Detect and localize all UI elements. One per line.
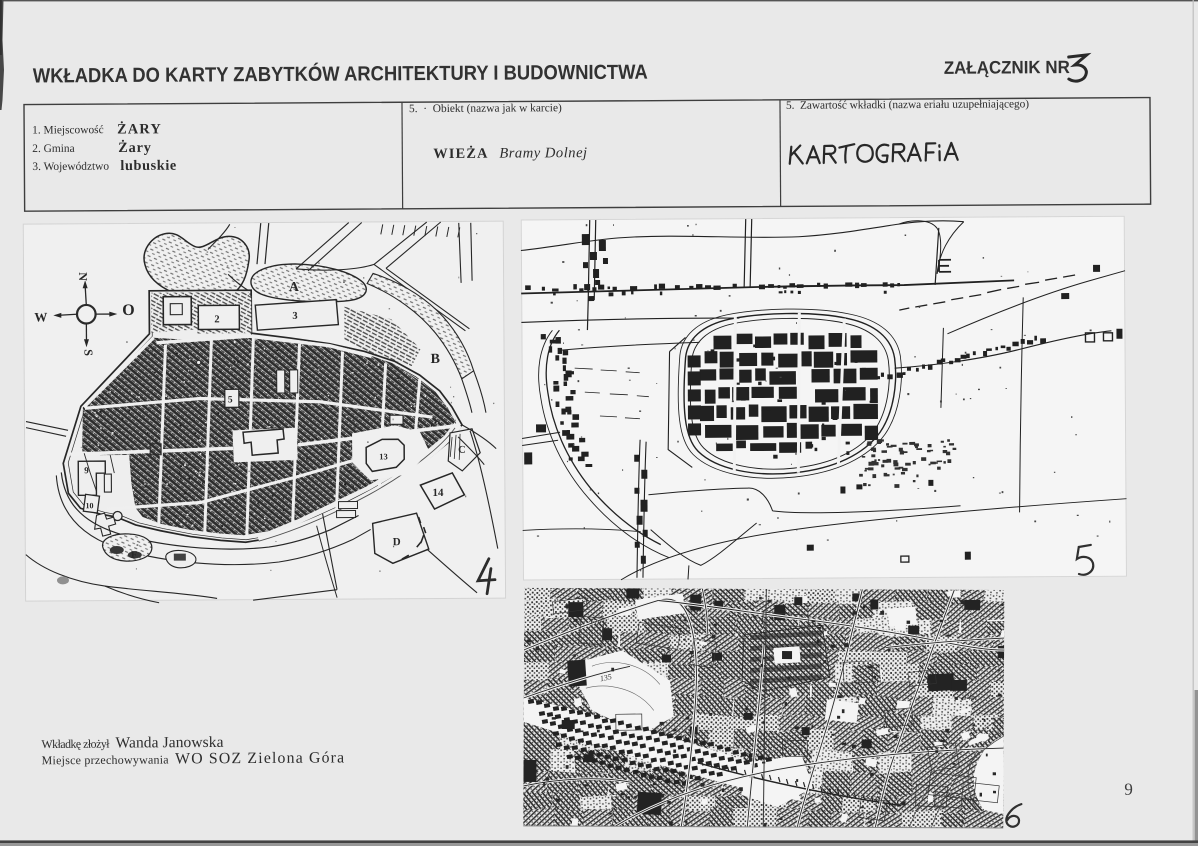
svg-text:5. · Obiekt (nazwa jak w kar: 5. · Obiekt (nazwa jak w karcie) [409,102,562,115]
svg-text:WIEŻA: WIEŻA [433,145,488,162]
svg-text:14: 14 [432,487,444,499]
svg-text:B: B [431,352,440,367]
svg-text:5: 5 [228,395,233,405]
svg-text:3. Województwo: 3. Województwo [32,161,109,173]
svg-text:ŻARY: ŻARY [117,120,162,137]
svg-text:Miejsce przechowywania: Miejsce przechowywania [42,753,170,768]
svg-text:WO SOZ Zielona Góra: WO SOZ Zielona Góra [175,749,344,767]
svg-text:S: S [82,349,96,356]
svg-text:Żary: Żary [118,139,152,156]
svg-text:Wkładkę złożył: Wkładkę złożył [41,737,110,751]
svg-text:N: N [76,272,90,281]
svg-text:F: F [131,550,137,561]
svg-text:ZAŁĄCZNIK NR: ZAŁĄCZNIK NR [944,57,1070,78]
svg-text:3: 3 [292,311,297,322]
svg-text:10: 10 [85,501,93,510]
svg-text:Fbr: Fbr [589,617,603,626]
svg-text:Wanda Janowska: Wanda Janowska [115,734,223,752]
svg-text:1. Miejscowość: 1. Miejscowość [32,124,104,136]
svg-text:13: 13 [379,451,388,461]
svg-text:WKŁADKA DO KARTY ZABYTKÓW ARCH: WKŁADKA DO KARTY ZABYTKÓW ARCHITEKTURY I… [33,60,648,88]
svg-text:lubuskie: lubuskie [120,158,177,174]
svg-text:2. Gmina: 2. Gmina [32,143,74,155]
svg-text:A: A [289,279,299,294]
svg-text:Bramy Dolnej: Bramy Dolnej [499,145,587,162]
svg-text:C: C [458,445,466,456]
svg-text:9: 9 [1124,780,1133,799]
svg-text:Sci: Sci [947,793,957,802]
svg-text:O: O [122,302,135,319]
svg-text:W: W [34,309,47,324]
svg-text:2: 2 [214,314,219,325]
svg-text:5. Zawartość wkładki (nazwa e: 5. Zawartość wkładki (nazwa eriału uzupe… [786,98,1029,112]
svg-text:Flm: Flm [963,693,977,702]
